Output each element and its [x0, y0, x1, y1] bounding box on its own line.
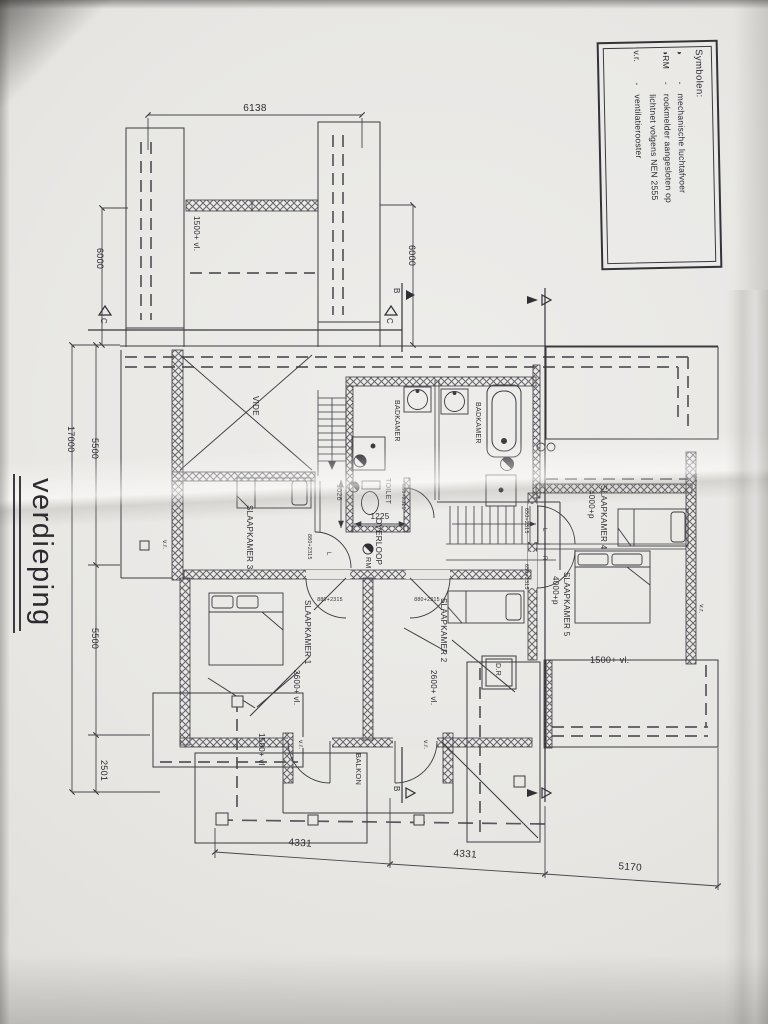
room-label-balkon: BALKON [354, 753, 363, 785]
section-lines [88, 283, 545, 803]
bed-slaapkamer4 [618, 509, 688, 546]
vr-label-east-upper: v.r. [691, 474, 699, 484]
vr-label-annex: v.r. [161, 540, 168, 549]
bed-slaapkamer2 [448, 591, 524, 623]
rm-smoke-detector-icon [363, 542, 375, 554]
dim-depth-upper: 5500 [90, 438, 100, 459]
note-2600vl-sk1: 2600+ vl. [292, 670, 301, 705]
section-label-b-bottom: B [392, 786, 401, 792]
door-size-sk5: 650+2315 [523, 564, 529, 590]
room-label-slaapkamer1: SLAAPKAMER 1 [303, 600, 312, 665]
legend-row-vent-grille: v.r. - ventilatierooster [631, 50, 646, 256]
dim-depth-lower: 5500 [90, 628, 100, 649]
vide-cross [180, 355, 312, 470]
sheet-title-text: verdieping [19, 476, 58, 631]
door-size-sk1: 880+2315 [317, 597, 343, 603]
vent-grille-legend-label: v.r. [631, 50, 643, 82]
vr-label-east-lower: v.r. [697, 604, 705, 614]
section-label-b-top: B [392, 288, 401, 294]
legend-content: Symbolen: ◑ - mechanische luchtafvoer ◑R… [606, 49, 708, 257]
dim-toilet-width: 1026 [335, 484, 342, 501]
room-label-slaapkamer2: SLAAPKAMER 2 [439, 598, 448, 663]
legend-dash: - [674, 81, 685, 93]
door-hinge-sk3: L [325, 552, 331, 556]
legend-text: mechanische luchtafvoer [675, 93, 690, 255]
bed-slaapkamer5 [575, 551, 650, 623]
note-1500vl-wing: 1500+ vl. [192, 216, 201, 251]
note-1500vl-right: 1500+ vl. [590, 655, 629, 665]
legend-row-mech-vent: ◑ - mechanische luchtafvoer [674, 49, 689, 255]
legend-row-smoke-detector-cont: lichtnet volgens NEN 2555 [645, 50, 660, 256]
dim-depth-total: 17000 [66, 426, 76, 453]
legend-text: rookmelder aangesloten op [660, 94, 675, 256]
room-label-badkamer-right: BADKAMER [474, 402, 481, 444]
bed-slaapkamer3 [237, 478, 311, 508]
room-label-toilet: TOILET [384, 478, 391, 505]
bathtub [487, 385, 521, 457]
room-label-overloop: OVERLOOP [374, 518, 383, 565]
rm-symbol-label: RM [364, 557, 371, 569]
room-label-slaapkamer5: SLAAPKAMER 5 [562, 572, 571, 637]
sheet-title: verdieping [22, 476, 58, 644]
note-2600vl-sk2: 2600+ vl. [429, 670, 438, 705]
dim-top-width: 6138 [243, 103, 267, 114]
room-label-badkamer-left: BADKAMER [393, 400, 400, 442]
dim-side-right: 6000 [407, 245, 417, 266]
note-4000p-sk4: 4000+p [587, 490, 596, 519]
door-hinge-sk5: R [541, 556, 547, 561]
door-size-sk2: 880+2315 [414, 597, 440, 603]
bed-slaapkamer1 [209, 593, 283, 665]
room-label-dr: D.R. [494, 663, 501, 678]
dim-bottom-right: 5170 [618, 861, 642, 874]
legend-text: ventilatierooster [632, 94, 647, 256]
shower-right [486, 475, 516, 506]
stairs-main [446, 506, 556, 560]
door-hinge-sk4: L [541, 528, 547, 532]
sink-left [404, 387, 431, 412]
room-label-slaapkamer4: SLAAPKAMER 4 [599, 485, 608, 550]
sink-right [441, 389, 468, 414]
room-label-slaapkamer3: SLAAPKAMER 3 [245, 505, 254, 570]
smoke-detector-legend-icon: ◑RM [659, 50, 671, 82]
dim-bottom-left: 4331 [288, 837, 312, 850]
dim-side-left: 6000 [95, 248, 105, 269]
legend-row-smoke-detector: ◑RM - rookmelder aangesloten op [659, 50, 674, 256]
legend-dash: - [660, 82, 671, 94]
legend-dash: - [632, 82, 643, 94]
dim-depth-bottom: 2501 [99, 760, 109, 781]
legend-text: lichtnet volgens NEN 2555 [646, 94, 661, 256]
stairs-left [318, 390, 346, 476]
door-size-sk3: 880+2315 [306, 534, 312, 560]
note-4000p-sk5: 4000+p [551, 576, 560, 605]
section-label-c-left: C [99, 318, 108, 324]
dim-bottom-mid: 4331 [453, 848, 477, 861]
legend-box: Symbolen: ◑ - mechanische luchtafvoer ◑R… [597, 40, 723, 270]
room-label-vide: VIDE [251, 396, 260, 416]
vr-label-balkon-right: v.r. [422, 740, 429, 749]
mech-vent-legend-icon: ◑ [674, 49, 686, 81]
toilet-fixture [362, 481, 381, 515]
door-size-toilet: 650+2315 [400, 484, 406, 510]
section-label-c-right: C [385, 318, 394, 324]
shower-left [352, 437, 385, 470]
vr-label-balkon-left: v.r. [297, 740, 304, 749]
door-size-sk4: 650+2315 [523, 508, 529, 534]
note-1500vl-bottomleft: 1500+ vl. [257, 733, 266, 768]
